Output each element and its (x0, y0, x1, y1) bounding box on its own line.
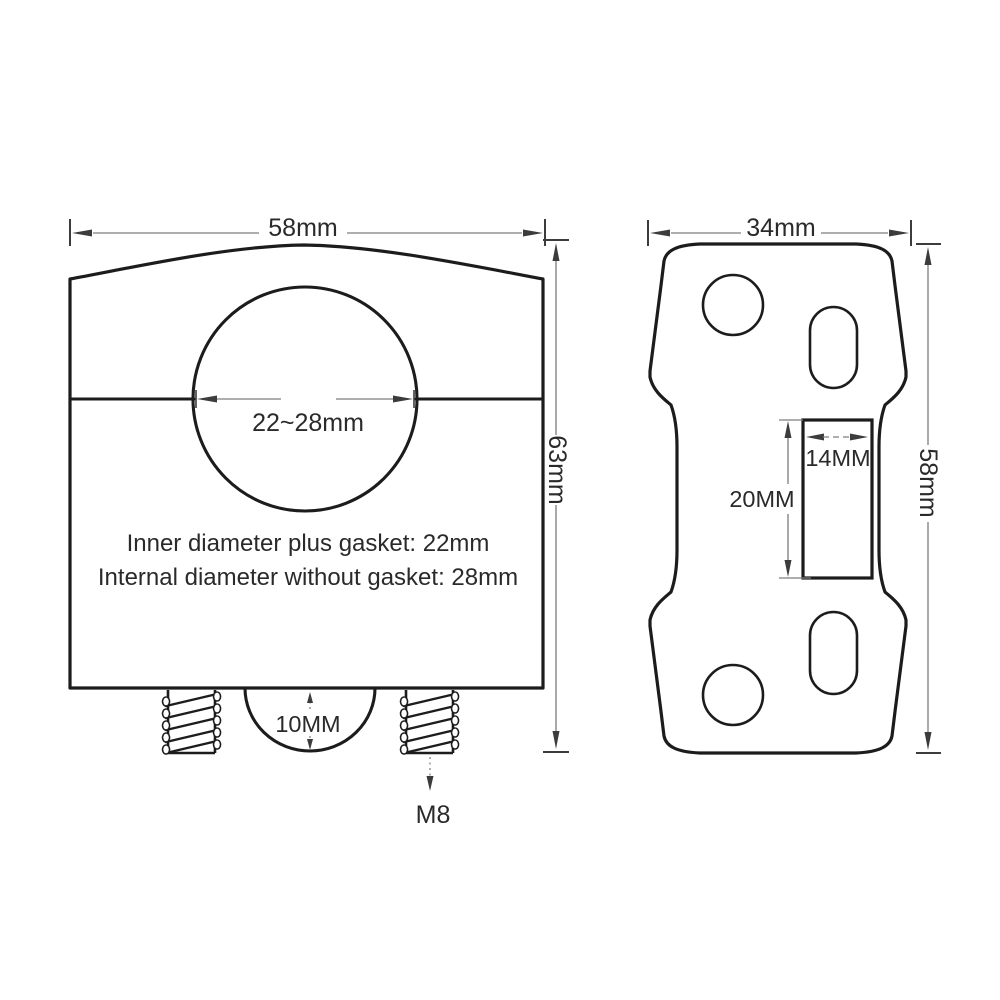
center-slot (803, 420, 872, 578)
thread-coils (166, 694, 217, 753)
note-line-2: Internal diameter without gasket: 28mm (98, 564, 518, 591)
slot-length-label: 20MM (729, 486, 794, 512)
bolt-hole-top-left (703, 275, 763, 335)
top-view: 34mm 20MM 14MM (648, 214, 942, 753)
front-width-label: 58mm (268, 214, 337, 242)
arrow-down-icon (553, 731, 560, 749)
note-line-1: Inner diameter plus gasket: 22mm (127, 530, 490, 557)
technical-drawing-canvas: 58mm 22~28mm Inner diameter plus gasket:… (0, 0, 1000, 1000)
arrow-up-icon (925, 247, 932, 265)
boss-label: 10MM (275, 711, 340, 737)
bolt-hole-bottom-left (703, 665, 763, 725)
arrow-up-icon (307, 692, 313, 703)
drawing-sheet: 58mm 22~28mm Inner diameter plus gasket:… (0, 0, 1000, 1000)
thread-label: M8 (416, 801, 451, 829)
front-height-dimension: 63mm (543, 240, 571, 752)
front-width-dimension: 58mm (70, 214, 545, 246)
thread-callout: M8 (416, 757, 451, 829)
thread-coils (404, 694, 455, 753)
front-height-label: 63mm (543, 435, 571, 504)
top-width-label: 34mm (746, 214, 815, 242)
boss-dimension: 10MM (275, 692, 340, 750)
arrow-left-icon (72, 230, 92, 237)
front-view: 58mm 22~28mm Inner diameter plus gasket:… (70, 214, 571, 829)
arrow-right-icon (523, 230, 543, 237)
top-width-dimension: 34mm (648, 214, 911, 246)
slot-hole-bottom-right (810, 612, 857, 694)
top-height-dimension: 58mm (914, 244, 942, 753)
slot-width-label: 14MM (805, 445, 870, 471)
arrow-down-icon (307, 739, 313, 750)
arrow-down-icon (427, 776, 434, 791)
arrow-up-icon (553, 243, 560, 261)
clamp-body-outline (70, 245, 543, 688)
left-stud-thread (163, 690, 221, 754)
slot-hole-top-right (810, 307, 857, 388)
arrow-right-icon (889, 230, 909, 237)
right-stud-thread (401, 690, 459, 754)
bore-label: 22~28mm (252, 409, 364, 437)
arrow-down-icon (925, 732, 932, 750)
top-height-label: 58mm (914, 448, 942, 517)
arrow-left-icon (650, 230, 670, 237)
